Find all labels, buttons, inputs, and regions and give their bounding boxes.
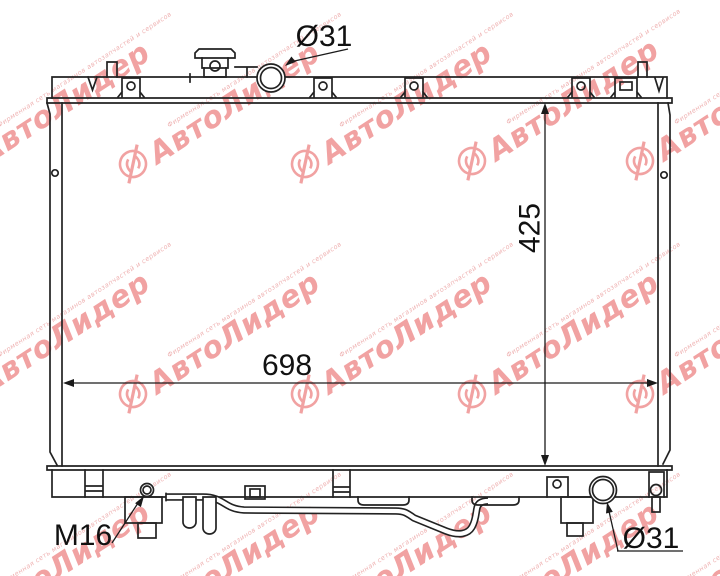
mounting-bracket-top-1	[118, 78, 144, 97]
callout-top-diameter: Ø31	[285, 20, 352, 66]
height-label: 425	[514, 203, 547, 253]
radiator-line-drawing: 425 698 Ø31 Ø31 M16	[0, 0, 720, 576]
mounting-bracket-top-2	[310, 78, 336, 97]
top-fitting	[611, 78, 641, 97]
bottom-bracket-small	[547, 477, 568, 497]
dimension-width: 698	[63, 349, 658, 387]
mounting-bracket-top-4	[568, 78, 594, 97]
mounting-bracket-top-3	[401, 78, 427, 97]
bottom-bracket-right	[649, 472, 664, 512]
filler-neck-circle	[257, 64, 285, 92]
bottom-tank	[47, 466, 672, 499]
callout-bottom-diameter: Ø31	[606, 502, 683, 555]
left-side-plate	[47, 103, 62, 466]
drain-thread-label: M16	[54, 519, 112, 552]
lower-mounting-bracket	[166, 494, 519, 534]
width-label: 698	[262, 349, 312, 382]
bottom-diameter-label: Ø31	[623, 522, 680, 555]
radiator-diagram-page: Фирменная сеть магазинов автозапчастей и…	[0, 0, 720, 576]
top-diameter-label: Ø31	[296, 20, 353, 53]
drain-plug	[125, 484, 162, 539]
bottom-pipes	[183, 497, 216, 534]
callout-drain-thread: M16	[54, 496, 144, 552]
dimension-height: 425	[514, 103, 550, 466]
right-side-plate	[658, 103, 670, 466]
